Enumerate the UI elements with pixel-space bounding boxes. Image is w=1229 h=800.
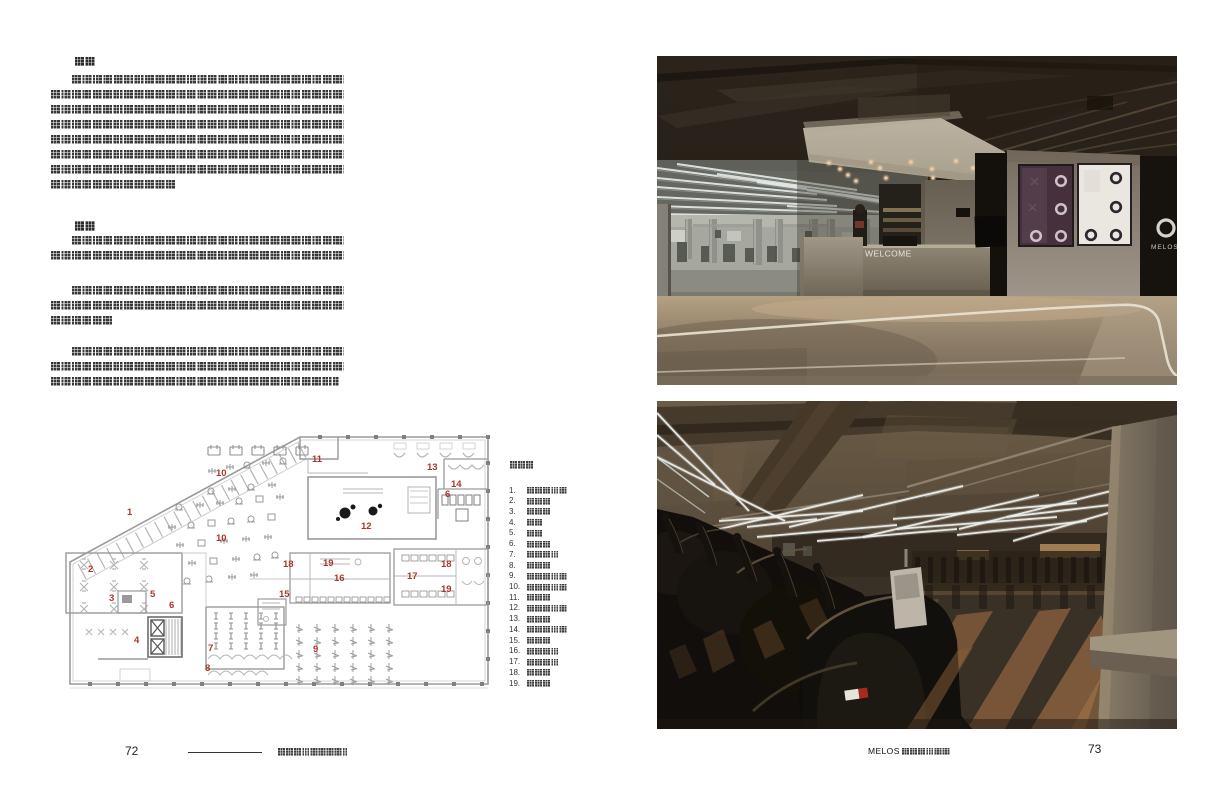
svg-text:19: 19 (323, 558, 334, 569)
svg-text:1: 1 (127, 507, 133, 518)
svg-text:8: 8 (205, 663, 210, 674)
svg-text:14: 14 (451, 479, 462, 490)
svg-text:16: 16 (334, 573, 345, 584)
svg-text:WELCOME: WELCOME (865, 249, 912, 259)
svg-text:6: 6 (445, 489, 450, 500)
svg-text:18: 18 (283, 559, 294, 570)
svg-text:2: 2 (88, 564, 93, 575)
svg-text:17: 17 (407, 571, 418, 582)
svg-text:18: 18 (441, 559, 452, 570)
svg-text:10: 10 (216, 533, 227, 544)
svg-text:4: 4 (134, 635, 140, 646)
svg-text:6: 6 (169, 600, 174, 611)
svg-text:12: 12 (361, 521, 372, 532)
svg-text:3: 3 (109, 593, 114, 604)
svg-text:15: 15 (279, 589, 290, 600)
svg-text:19: 19 (441, 584, 452, 595)
svg-text:5: 5 (150, 589, 156, 600)
svg-text:7: 7 (208, 643, 213, 654)
svg-text:9: 9 (313, 644, 318, 655)
svg-text:13: 13 (427, 462, 438, 473)
svg-text:11: 11 (312, 454, 323, 465)
svg-text:MELOS: MELOS (1151, 244, 1177, 251)
svg-text:10: 10 (216, 468, 227, 479)
